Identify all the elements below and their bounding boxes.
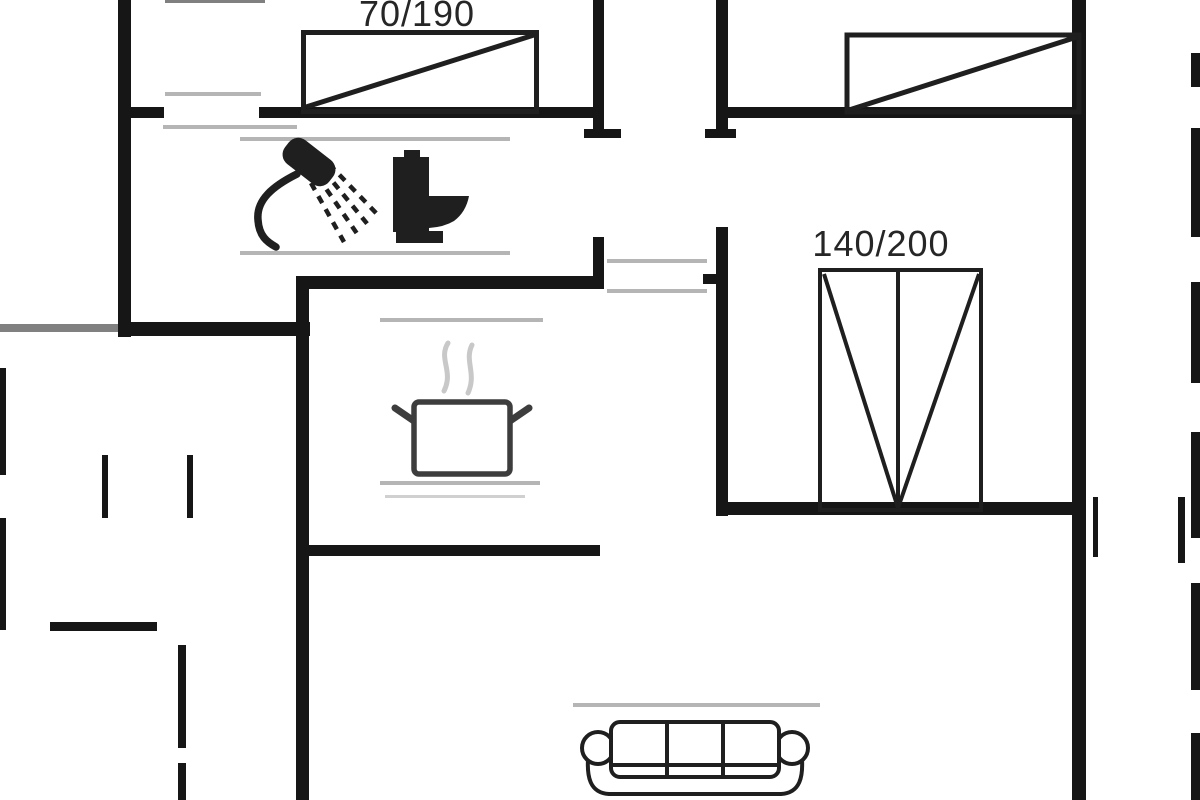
cooking-pot-icon [378, 335, 543, 485]
boundary-dash [1191, 53, 1200, 87]
floor-line [163, 125, 297, 129]
single-bed-icon [299, 28, 541, 116]
boundary-dash [1191, 282, 1200, 383]
boundary-dash [1191, 128, 1200, 237]
boundary-dash [1191, 583, 1200, 690]
door-swing-line [607, 289, 707, 293]
floor-line [573, 703, 820, 707]
boundary-dash [102, 455, 108, 518]
door-swing-line [165, 92, 261, 96]
counter-line [385, 495, 525, 498]
single-bed-icon [843, 30, 1083, 116]
wall-segment [593, 237, 604, 289]
boundary-dash [1093, 497, 1098, 557]
boundary-dash [0, 518, 6, 630]
boundary-dash [1178, 497, 1185, 563]
sofa-icon [575, 713, 815, 800]
boundary-line [0, 324, 118, 332]
boundary-dash [178, 763, 186, 800]
wall-segment [716, 227, 728, 516]
wall-segment [296, 276, 604, 289]
wall-segment [118, 0, 131, 337]
boundary-dash [50, 622, 157, 631]
door-jamb-tick [703, 274, 716, 284]
shower-icon [245, 140, 380, 255]
toilet-icon [385, 147, 475, 247]
counter-line [380, 318, 543, 322]
boundary-dash [1191, 733, 1200, 800]
door-jamb-tick [584, 129, 621, 138]
double-bed-icon [816, 266, 986, 514]
wall-segment [296, 276, 309, 800]
window-line [165, 0, 265, 3]
boundary-dash [187, 455, 193, 518]
wall-segment [118, 322, 310, 336]
boundary-dash [1191, 432, 1200, 538]
door-swing-line [607, 259, 707, 263]
boundary-dash [178, 645, 186, 748]
wall-segment [1072, 0, 1086, 800]
door-jamb-tick [705, 129, 736, 138]
floor-plan: 70/190 140/200 [0, 0, 1200, 800]
wall-segment [124, 107, 164, 118]
wall-segment [309, 545, 600, 556]
boundary-dash [0, 368, 6, 475]
bed-size-label: 140/200 [804, 226, 958, 262]
